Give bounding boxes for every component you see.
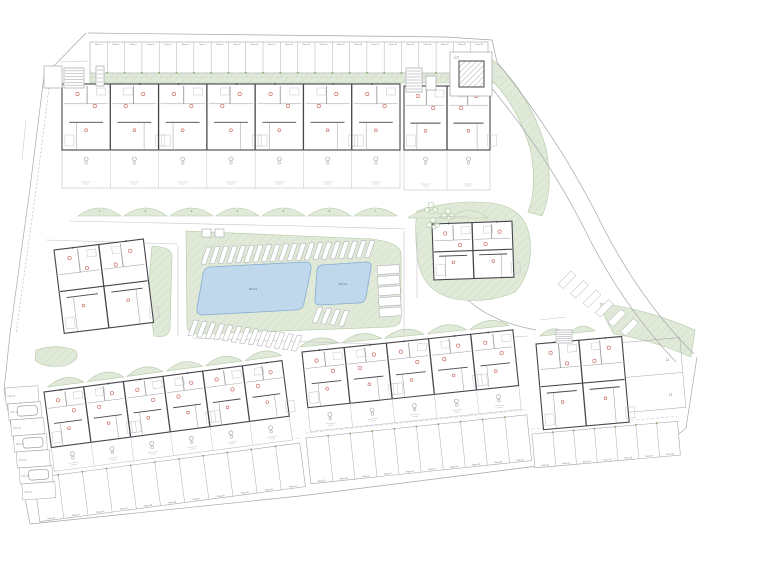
stall-tick [614, 426, 616, 428]
door-dot [403, 340, 405, 342]
stall-label: Plaza 6 [182, 44, 190, 46]
parking-stall [378, 286, 401, 296]
stall-tick [154, 461, 156, 463]
garden-mound [127, 367, 163, 377]
stall-label: Plaza 11 [268, 44, 277, 46]
stall-label: Plaza 10 [250, 44, 259, 46]
sign-box [202, 229, 211, 237]
stall-label: Plaza 13 [302, 44, 311, 46]
stall-label: Plaza 21 [441, 44, 450, 46]
stall-tick [106, 468, 108, 470]
parking-stall [379, 307, 402, 317]
parking-stall [283, 334, 294, 350]
stall-label: Plaza 9 [234, 44, 242, 46]
stall-tick [107, 72, 109, 74]
door-dot [218, 368, 220, 370]
ancillary-structure [556, 330, 572, 343]
tree-canopy [428, 202, 434, 208]
ct-station: CT [450, 52, 492, 96]
ancillary-outline [44, 66, 62, 88]
stalls-road-curve [558, 271, 639, 336]
text-speck [540, 317, 566, 320]
garden-mound [428, 325, 467, 334]
stall-tick [130, 464, 132, 466]
door-dot [125, 240, 127, 242]
stall-label: Plaza 4 [147, 44, 155, 46]
ancillary-structure [96, 66, 104, 86]
building-community [432, 220, 521, 280]
door-dot [332, 83, 333, 85]
site-plan: PiscinaPiscina1112Plaza 1Plaza 2Plaza 3P… [0, 0, 758, 564]
stall-label: Plaza 2 [113, 44, 121, 46]
door-dot [236, 83, 237, 85]
parking-stall [558, 271, 576, 289]
pool-large-label: Piscina [249, 287, 258, 291]
garden-mound [343, 333, 382, 342]
stall-label: Plaza 23 [475, 44, 484, 46]
stall-label: Plaza 15 [337, 44, 346, 46]
boundary-line [16, 80, 50, 334]
ancillary-structure [406, 68, 422, 92]
ancillary-outline [426, 76, 436, 90]
stall-label: Plaza 20 [424, 44, 433, 46]
stall-tick [573, 429, 575, 431]
building-row-bottom-mid [302, 329, 521, 432]
plot-number: 12 [668, 392, 672, 396]
plot-number: 11 [665, 358, 669, 362]
ancillary-structure [426, 76, 436, 90]
parking-stall-wrap: Plaza 25 [8, 402, 42, 420]
tree-canopy [424, 207, 429, 212]
parking-stall [377, 265, 400, 275]
road-line [70, 221, 405, 229]
stall-tick [275, 445, 277, 447]
building-left-block [54, 237, 160, 333]
stall-label: Plaza 16 [354, 44, 363, 46]
stall-tick [635, 424, 637, 426]
door-dot [448, 223, 449, 225]
parking-stall [571, 281, 589, 299]
stall-label: Plaza 5 [165, 44, 173, 46]
stall-label: Plaza 3 [130, 44, 138, 46]
building-row-top-a [62, 83, 400, 188]
parking-stall [378, 275, 401, 285]
stall-label: Plaza 14 [320, 44, 329, 46]
door-dot [139, 83, 140, 85]
stall-label: Plaza 17 [372, 44, 381, 46]
sign-box [215, 229, 224, 237]
stall-tick [393, 428, 395, 430]
door-dot [178, 83, 179, 85]
stall-tick [245, 72, 247, 74]
door-dot [371, 83, 372, 85]
stall-tick [124, 72, 126, 74]
garden-mound [246, 351, 282, 361]
tree-canopy [430, 217, 436, 223]
door-dot [319, 349, 321, 351]
stall-tick [297, 72, 299, 74]
stall-tick [331, 72, 333, 74]
garden-mound [48, 377, 84, 387]
stall-tick [656, 422, 658, 424]
stall-tick [435, 72, 437, 74]
stall-tick [416, 426, 418, 428]
stall-tick [438, 423, 440, 425]
ct-label: CT [454, 55, 460, 60]
text-speck [60, 61, 88, 62]
terrace-strip [62, 150, 400, 188]
door-dot [487, 332, 489, 334]
stall-tick [349, 72, 351, 74]
door-dot [369, 344, 371, 346]
ancillary-structure [44, 66, 62, 88]
stall-tick [202, 455, 204, 457]
stall-label: Plaza 8 [216, 44, 224, 46]
parking-stall-wrap: Plaza 30 [22, 482, 56, 500]
parking-stall-wrap: Plaza 26 [11, 418, 45, 436]
ancillary-outline [96, 66, 104, 86]
parking-row-outline [90, 42, 488, 73]
stall-tick [327, 435, 329, 437]
parking-row-top: Plaza 1Plaza 2Plaza 3Plaza 4Plaza 5Plaza… [90, 42, 505, 77]
stall-tick [460, 421, 462, 423]
garden-mound [385, 329, 424, 338]
parking-stall-wrap: Plaza 28 [16, 450, 50, 468]
tree-canopy [432, 225, 436, 229]
tree-canopy [430, 210, 434, 214]
stall-tick [552, 431, 554, 433]
parking-stall [291, 335, 302, 351]
stall-tick [193, 72, 195, 74]
stall-tick [141, 72, 143, 74]
door-dot [187, 372, 189, 374]
stall-tick [314, 72, 316, 74]
ancillary-structure [64, 68, 84, 88]
stalls-island-right [377, 265, 402, 318]
stall-tick [210, 72, 212, 74]
building-bottom-right-block [536, 335, 636, 430]
boundary-line [88, 33, 446, 37]
room-line [453, 225, 454, 240]
stall-tick [366, 72, 368, 74]
stall-tick [280, 72, 282, 74]
door-dot [496, 221, 497, 223]
parking-stall [265, 331, 276, 347]
stall-tick [228, 72, 230, 74]
parking-stall-wrap: Plaza 27 [13, 434, 47, 452]
door-dot [60, 389, 62, 391]
stall-tick [176, 72, 178, 74]
stall-tick [401, 72, 403, 74]
stall-label: Plaza 1 [95, 44, 103, 46]
door-dot [454, 335, 456, 337]
stall-tick [262, 72, 264, 74]
stall-label: Plaza 12 [285, 44, 294, 46]
door-dot [274, 83, 275, 85]
building-outline [62, 84, 400, 150]
stall-tick [57, 474, 59, 476]
parking-stall [583, 290, 601, 308]
building-row-top-b [404, 85, 496, 190]
stall-tick [383, 72, 385, 74]
tree-canopy [426, 222, 431, 227]
ct-hut [459, 61, 484, 87]
plan-svg: PiscinaPiscina1112Plaza 1Plaza 2Plaza 3P… [0, 0, 758, 564]
parking-stall [379, 296, 402, 306]
garden-mound [88, 372, 124, 382]
garden-mound [569, 326, 595, 333]
stall-label: Plaza 22 [458, 44, 467, 46]
door-dot [107, 383, 109, 385]
parking-stall-wrap: Plaza 29 [19, 466, 53, 484]
stall-tick [158, 72, 160, 74]
tree-canopy [441, 213, 446, 218]
stall-tick [593, 428, 595, 430]
parking-stall-wrap: Plaza 24 [5, 386, 39, 404]
stall-tick [504, 416, 506, 418]
stall-tick [371, 430, 373, 432]
tree-canopy [445, 208, 451, 214]
garden-mound [206, 356, 242, 366]
stall-tick [226, 452, 228, 454]
tree-icon [424, 202, 437, 214]
garden-mound [470, 320, 509, 329]
stall-tick [178, 458, 180, 460]
door-dot [553, 342, 555, 344]
stall-tick [250, 448, 252, 450]
stall-label: Plaza 7 [199, 44, 207, 46]
door-dot [72, 247, 74, 249]
parking-stall [257, 330, 268, 346]
stall-label: Plaza 18 [389, 44, 398, 46]
text-speck [22, 120, 26, 160]
green-band-left-hatch [150, 246, 173, 337]
stall-tick [81, 471, 83, 473]
stall-label: Plaza 19 [406, 44, 415, 46]
door-dot [139, 378, 141, 380]
stall-tick [349, 432, 351, 434]
door-dot [266, 362, 268, 364]
garden-mound [167, 362, 203, 372]
door-dot [604, 337, 606, 339]
stall-tick [482, 419, 484, 421]
pool-small-label: Piscina [339, 282, 348, 286]
